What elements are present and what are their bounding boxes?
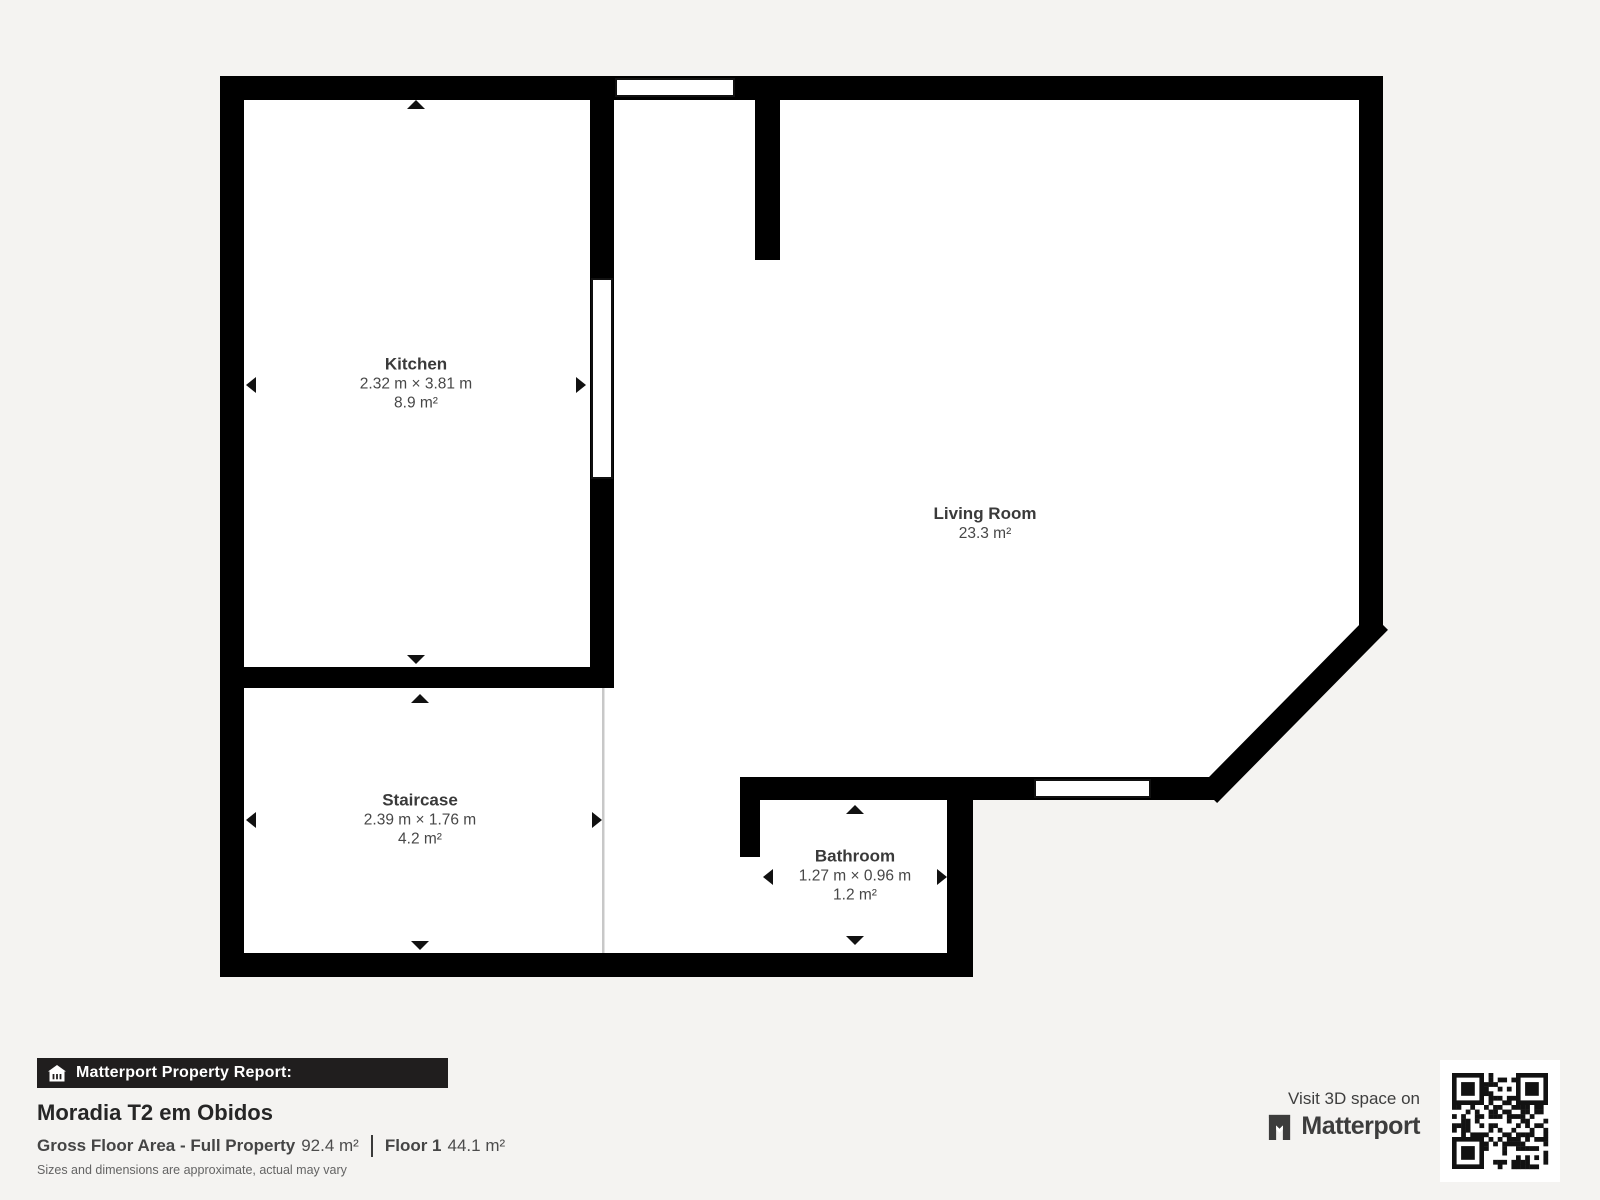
qr-code-pattern <box>1440 1060 1560 1182</box>
promo-block: Visit 3D space on Matterport <box>1266 1089 1420 1141</box>
room-dimensions: 1.27 m × 0.96 m <box>799 867 911 886</box>
room-label-kitchen: Kitchen 2.32 m × 3.81 m 8.9 m² <box>360 354 472 413</box>
room-dimensions: 2.39 m × 1.76 m <box>364 811 476 830</box>
floor-value: 44.1 m² <box>448 1136 506 1156</box>
matterport-m-icon <box>1266 1112 1293 1141</box>
room-name: Kitchen <box>360 354 472 375</box>
wall-top <box>220 76 1383 100</box>
brand-row: Matterport <box>1266 1112 1420 1141</box>
wall-kitchen-staircase-divider <box>220 667 614 688</box>
wall-left <box>220 76 244 977</box>
room-label-bathroom: Bathroom 1.27 m × 0.96 m 1.2 m² <box>799 846 911 905</box>
room-area: 8.9 m² <box>360 394 472 413</box>
floor-plan <box>0 0 1600 1200</box>
wall-bathroom-right <box>947 800 973 953</box>
room-name: Bathroom <box>799 846 911 867</box>
brand-name: Matterport <box>1301 1112 1420 1141</box>
room-label-living-room: Living Room 23.3 m² <box>934 503 1037 543</box>
report-bar-label: Matterport Property Report: <box>76 1064 292 1082</box>
staircase-boundary-line <box>602 688 605 953</box>
qr-code <box>1440 1060 1560 1182</box>
wall-bottom <box>220 953 973 977</box>
room-area: 4.2 m² <box>364 830 476 849</box>
window-icon-livingroom <box>1035 780 1150 797</box>
disclaimer-text: Sizes and dimensions are approximate, ac… <box>37 1163 347 1177</box>
window-icon-top <box>616 79 734 96</box>
property-title: Moradia T2 em Obidos <box>37 1100 273 1126</box>
gross-floor-value: 92.4 m² <box>301 1136 359 1156</box>
floor-label: Floor 1 <box>385 1136 442 1156</box>
room-name: Staircase <box>364 790 476 811</box>
wall-right <box>1359 76 1383 634</box>
floor-area-info: Gross Floor Area - Full Property 92.4 m²… <box>37 1135 505 1157</box>
wall-entry-stub <box>755 100 780 260</box>
room-label-staircase: Staircase 2.39 m × 1.76 m 4.2 m² <box>364 790 476 849</box>
report-bar: Matterport Property Report: <box>37 1058 448 1088</box>
divider <box>371 1135 373 1157</box>
room-dimensions: 2.32 m × 3.81 m <box>360 375 472 394</box>
room-area: 1.2 m² <box>799 886 911 905</box>
gross-floor-label: Gross Floor Area - Full Property <box>37 1136 295 1156</box>
window-icon-kitchen <box>592 279 612 478</box>
house-icon <box>48 1065 66 1082</box>
room-name: Living Room <box>934 503 1037 524</box>
room-area: 23.3 m² <box>934 524 1037 543</box>
visit-3d-text: Visit 3D space on <box>1266 1089 1420 1109</box>
wall-bathroom-left <box>740 800 760 857</box>
